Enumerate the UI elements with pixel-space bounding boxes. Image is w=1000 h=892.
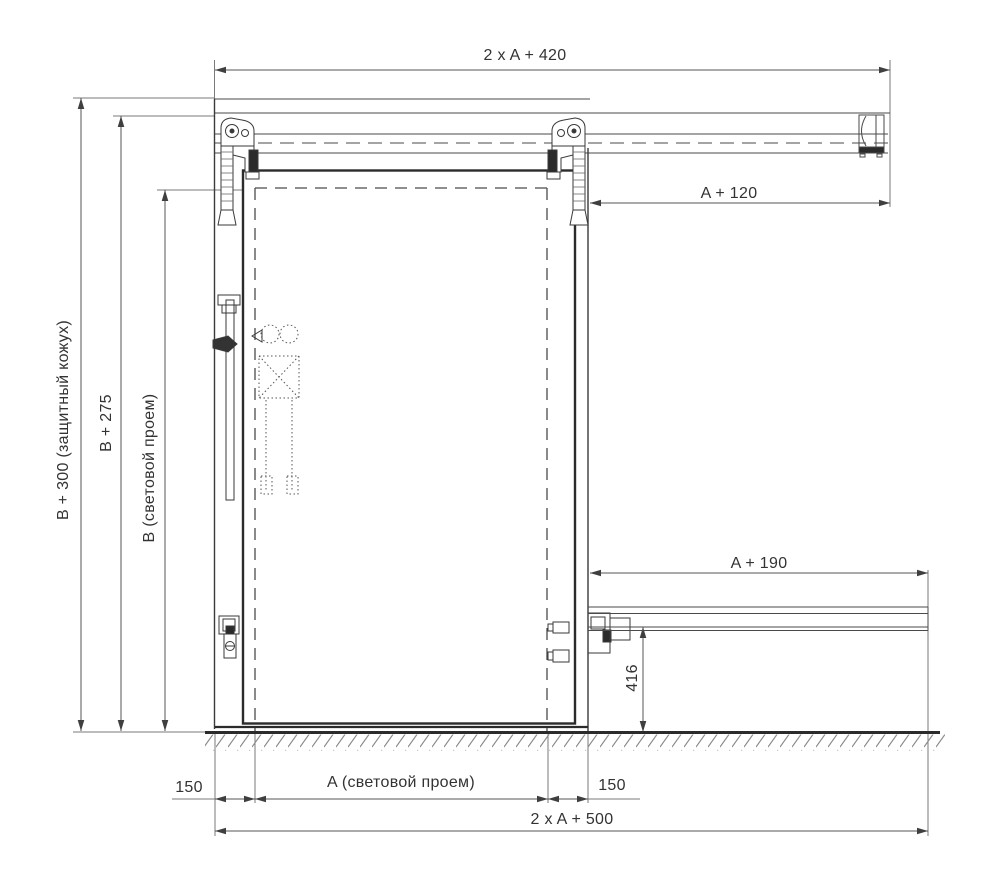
rail-end-cap: [859, 115, 884, 157]
dimension-label-total-width: 2 x A + 500: [531, 812, 614, 828]
dimension-label-track-right: A + 120: [701, 186, 758, 202]
lower-track: [588, 607, 928, 631]
dimension-label-guide-height: 416: [625, 664, 641, 692]
technical-drawing-canvas: 2 x A + 420 A + 120 A + 190 416 B + 300 …: [0, 0, 1000, 892]
door-leaf: [215, 99, 589, 732]
dimension-label-lower-track: A + 190: [731, 556, 788, 572]
dimension-label-opening-width: A (световой проем): [327, 775, 475, 791]
floor-hatching: [205, 735, 945, 751]
dimension-label-top-width: 2 x A + 420: [484, 48, 567, 64]
dimension-label-track-height: B + 275: [99, 394, 115, 452]
floor-line: [205, 733, 945, 751]
dimension-label-total-height: B + 300 (защитный кожух): [56, 320, 72, 520]
bottom-bracket-left: [219, 616, 239, 658]
dimension-label-overlap-right: 150: [598, 778, 626, 794]
dimension-label-overlap-left: 150: [175, 780, 203, 796]
dimension-label-opening-height: B (световой проем): [142, 394, 158, 543]
